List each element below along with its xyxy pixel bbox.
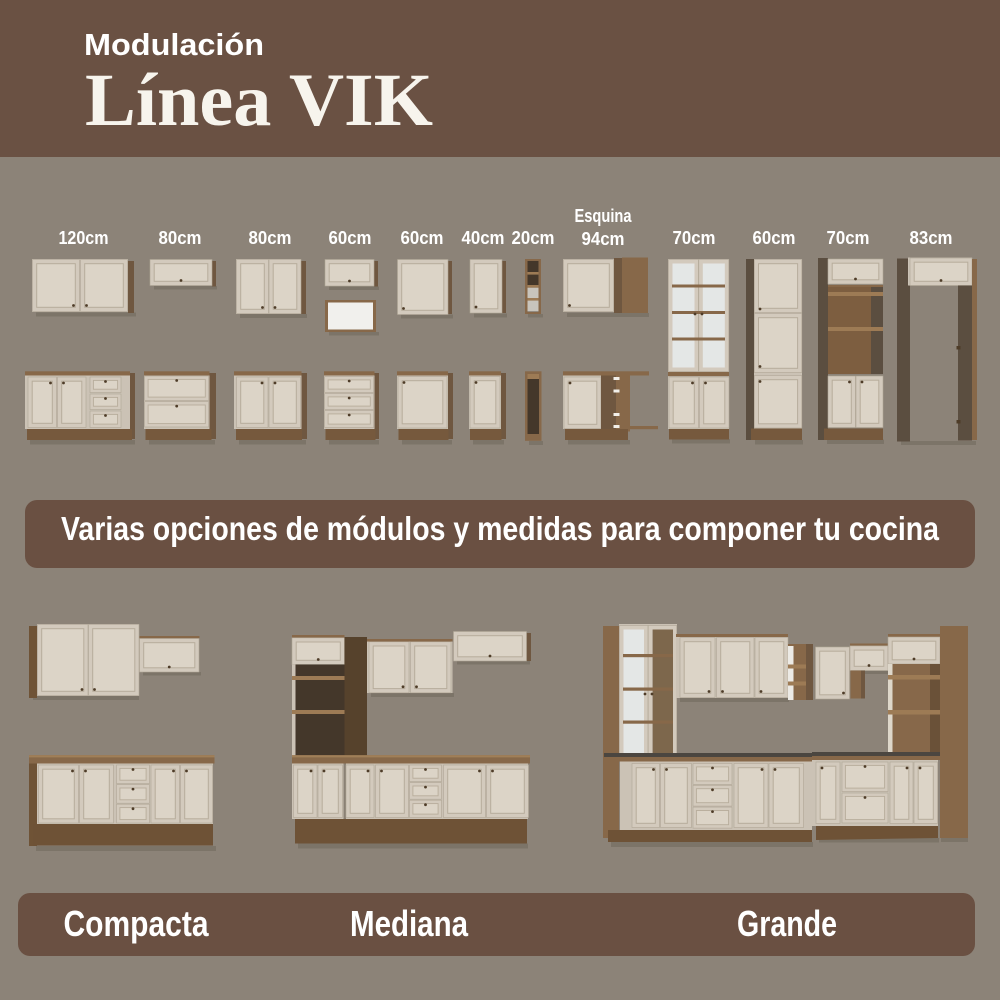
svg-text:Mediana: Mediana	[350, 903, 469, 944]
svg-text:60cm: 60cm	[329, 228, 372, 248]
svg-text:20cm: 20cm	[512, 228, 555, 248]
svg-text:80cm: 80cm	[159, 228, 202, 248]
svg-text:80cm: 80cm	[249, 228, 292, 248]
svg-text:Varias opciones de módulos y m: Varias opciones de módulos y medidas par…	[61, 510, 940, 547]
svg-text:83cm: 83cm	[910, 228, 953, 248]
svg-text:70cm: 70cm	[827, 228, 870, 248]
svg-text:Esquina: Esquina	[575, 206, 633, 226]
svg-text:120cm: 120cm	[59, 228, 109, 248]
svg-text:Compacta: Compacta	[64, 903, 210, 944]
svg-text:94cm: 94cm	[582, 229, 625, 249]
svg-text:Modulación: Modulación	[84, 27, 264, 62]
svg-text:40cm: 40cm	[462, 228, 505, 248]
svg-text:Línea VIK: Línea VIK	[85, 59, 433, 142]
svg-text:Grande: Grande	[737, 903, 837, 944]
svg-text:60cm: 60cm	[753, 228, 796, 248]
svg-text:70cm: 70cm	[673, 228, 716, 248]
svg-text:60cm: 60cm	[401, 228, 444, 248]
